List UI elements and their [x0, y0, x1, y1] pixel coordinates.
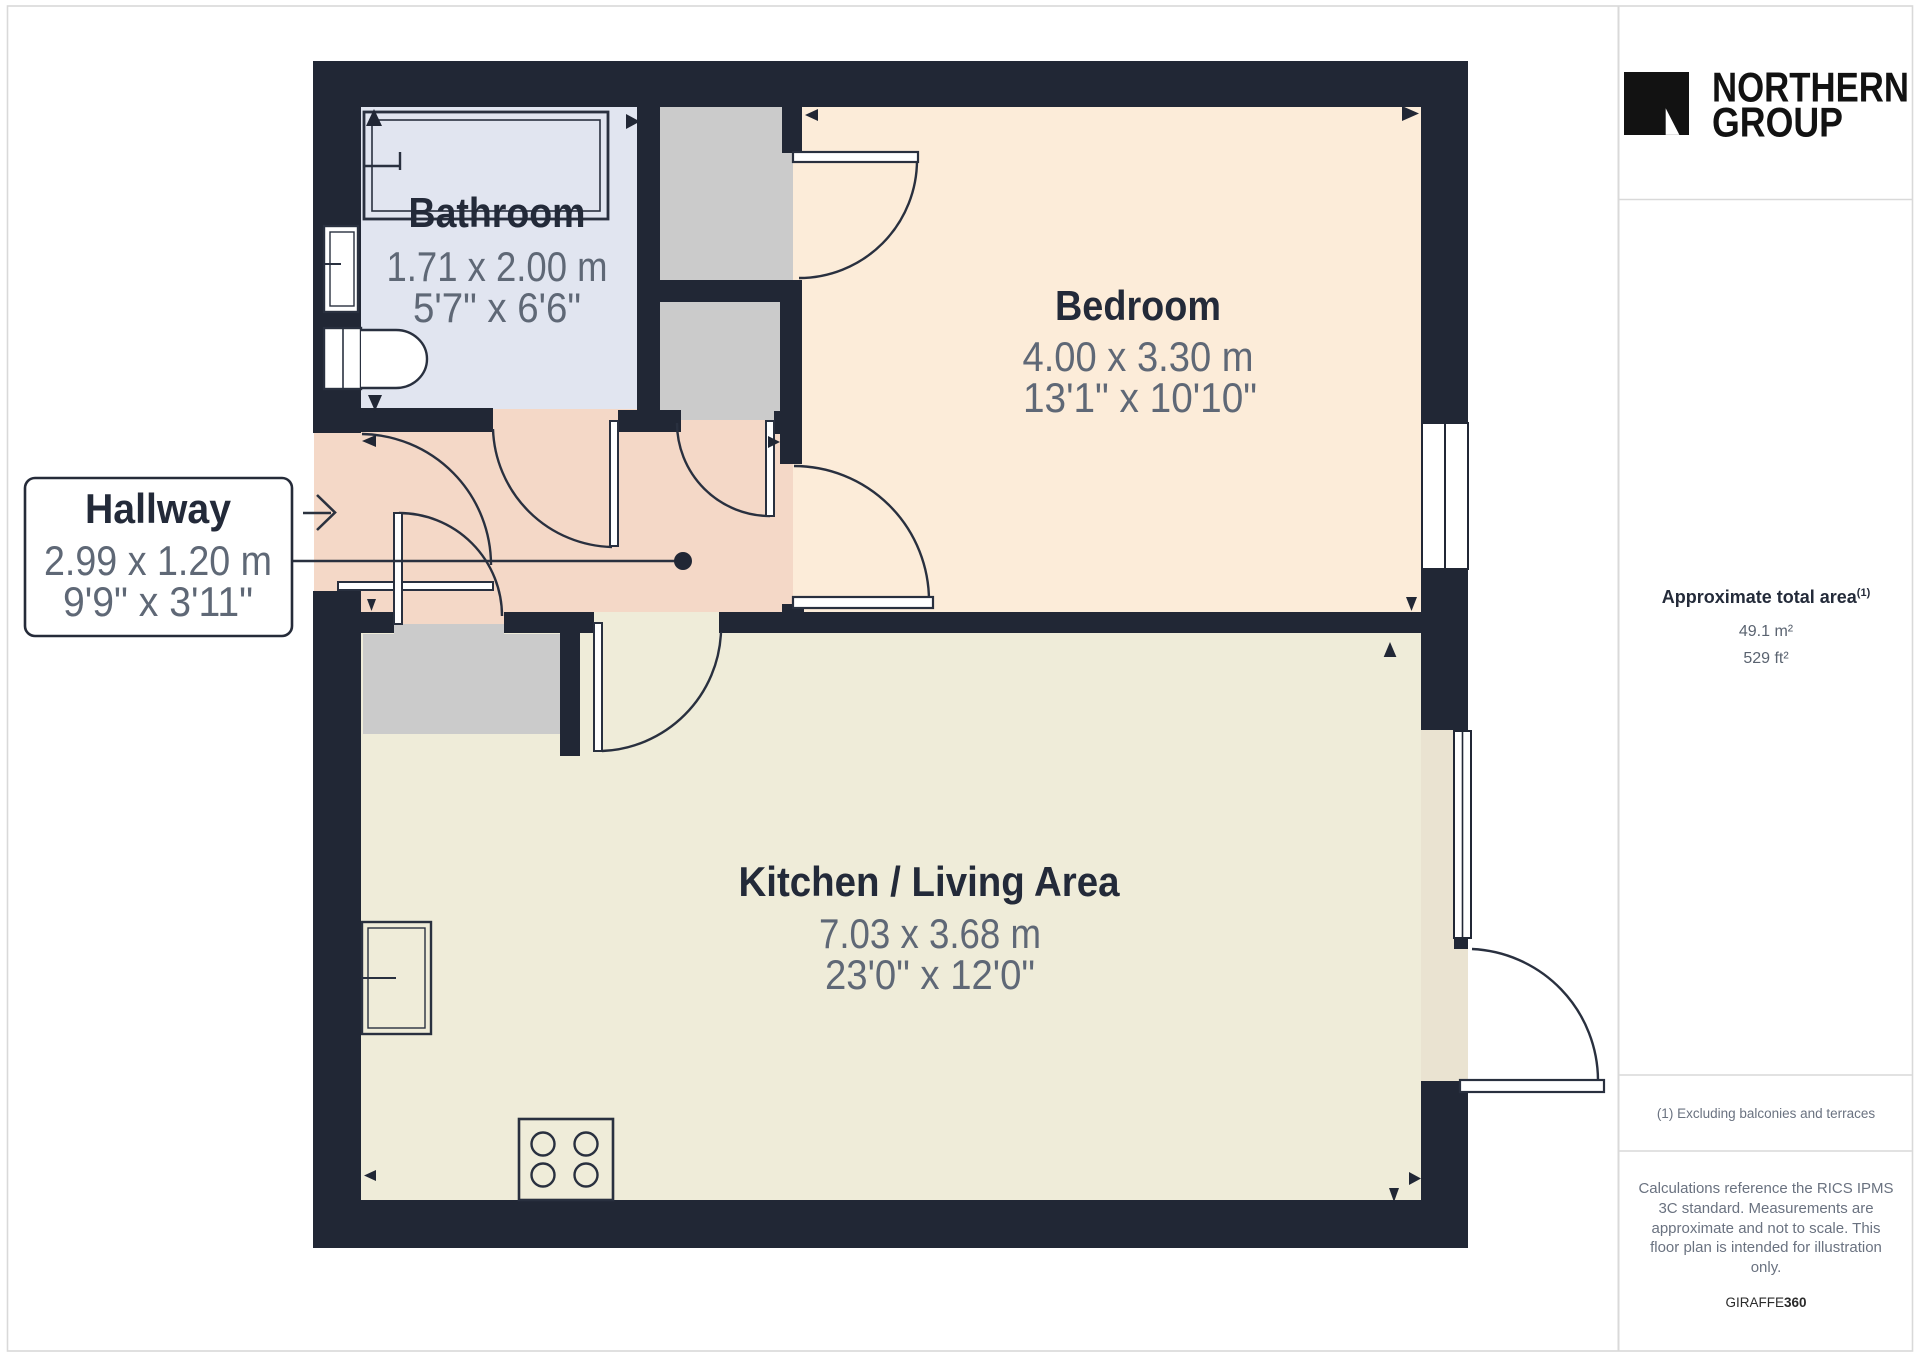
svg-text:2.99 x 1.20 m: 2.99 x 1.20 m: [44, 537, 272, 584]
svg-text:23'0" x 12'0": 23'0" x 12'0": [825, 951, 1035, 998]
svg-text:only.: only.: [1751, 1259, 1782, 1276]
svg-text:Calculations reference the RIC: Calculations reference the RICS IPMS: [1638, 1180, 1893, 1197]
svg-text:7.03 x 3.68 m: 7.03 x 3.68 m: [819, 910, 1041, 957]
svg-text:approximate and not to scale.: approximate and not to scale. This: [1651, 1220, 1880, 1237]
svg-text:529 ft²: 529 ft²: [1743, 650, 1789, 667]
svg-text:9'9" x 3'11": 9'9" x 3'11": [63, 578, 253, 625]
svg-text:GROUP: GROUP: [1712, 99, 1843, 146]
svg-text:13'1" x 10'10": 13'1" x 10'10": [1023, 374, 1257, 421]
svg-text:5'7" x 6'6": 5'7" x 6'6": [413, 284, 581, 331]
svg-text:Kitchen / Living Area: Kitchen / Living Area: [739, 858, 1121, 905]
svg-text:Hallway: Hallway: [85, 485, 232, 532]
svg-text:4.00 x 3.30 m: 4.00 x 3.30 m: [1023, 333, 1254, 380]
svg-text:floor plan is intended for ill: floor plan is intended for illustration: [1650, 1239, 1882, 1256]
svg-text:3C standard. Measurements are: 3C standard. Measurements are: [1658, 1200, 1873, 1217]
svg-text:Bedroom: Bedroom: [1055, 282, 1221, 329]
svg-text:1.71 x 2.00 m: 1.71 x 2.00 m: [387, 243, 608, 290]
svg-text:49.1 m²: 49.1 m²: [1739, 623, 1794, 640]
svg-text:(1) Excluding balconies and te: (1) Excluding balconies and terraces: [1657, 1106, 1876, 1121]
svg-text:Approximate total area(1): Approximate total area(1): [1662, 587, 1871, 607]
svg-text:GIRAFFE360: GIRAFFE360: [1725, 1295, 1806, 1310]
svg-text:Bathroom: Bathroom: [409, 189, 586, 236]
